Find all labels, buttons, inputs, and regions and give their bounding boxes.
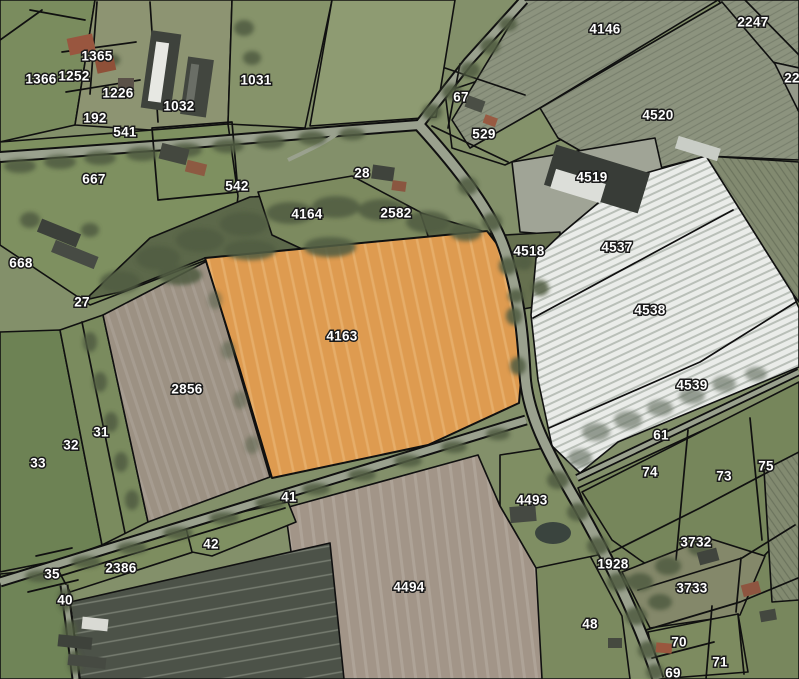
house <box>608 638 622 648</box>
parcel-label-1226: 1226 <box>102 86 133 101</box>
parcel-label-28: 28 <box>354 166 370 181</box>
parcel-label-529: 529 <box>472 127 495 142</box>
parcel-label-32: 32 <box>63 438 79 453</box>
parcel-label-42: 42 <box>203 537 219 552</box>
parcel-label-71: 71 <box>712 655 728 670</box>
parcel-label-35: 35 <box>44 567 60 582</box>
parcel-label-69: 69 <box>665 666 681 679</box>
parcel-label-70: 70 <box>671 635 687 650</box>
parcel-label-2582: 2582 <box>380 206 411 221</box>
parcel-label-667: 667 <box>82 172 105 187</box>
parcel-label-4518: 4518 <box>513 244 544 259</box>
parcel-label-1928: 1928 <box>597 557 628 572</box>
parcel-label-1365: 1365 <box>81 49 112 64</box>
parcel-label-41: 41 <box>281 490 297 505</box>
parcel-label-1031: 1031 <box>240 73 271 88</box>
parcel-label-4493: 4493 <box>516 493 547 508</box>
house <box>509 505 536 523</box>
parcel-label-668: 668 <box>9 256 33 271</box>
parcel-label-40: 40 <box>57 593 73 608</box>
parcel-label-4494: 4494 <box>393 580 424 595</box>
map-viewport[interactable]: 1365136612521226103210311925416676682754… <box>0 0 799 679</box>
parcel-label-75: 75 <box>758 459 774 474</box>
parcel-label-48: 48 <box>582 617 598 632</box>
parcel-label-31: 31 <box>93 425 109 440</box>
map-canvas[interactable]: 1365136612521226103210311925416676682754… <box>0 0 799 679</box>
parcel-label-3733: 3733 <box>676 581 707 596</box>
parcel-label-2386: 2386 <box>105 561 136 576</box>
parcel-label-73: 73 <box>716 469 732 484</box>
parcel-label-4163: 4163 <box>326 329 357 344</box>
parcel-label-67: 67 <box>453 90 469 105</box>
parcel-label-4520: 4520 <box>642 108 673 123</box>
parcel-label-4164: 4164 <box>291 207 322 222</box>
parcel-label-1366: 1366 <box>25 72 56 87</box>
parcel-label-4146: 4146 <box>589 22 620 37</box>
parcel-label-3732: 3732 <box>680 535 711 550</box>
parcel-label-74: 74 <box>642 465 658 480</box>
pond <box>535 522 571 544</box>
parcel-label-1032: 1032 <box>163 99 194 114</box>
parcel-label-541: 541 <box>113 125 137 140</box>
parcel-label-4537: 4537 <box>601 240 632 255</box>
parcel-label-27: 27 <box>74 295 90 310</box>
parcel-label-4538: 4538 <box>634 303 665 318</box>
parcel-label-542: 542 <box>225 179 248 194</box>
house-red-roof <box>656 642 673 653</box>
parcel-label-33: 33 <box>30 456 46 471</box>
parcel-label-61: 61 <box>653 428 669 443</box>
parcel-label-4519: 4519 <box>576 170 607 185</box>
parcel-label-4539: 4539 <box>676 378 707 393</box>
parcel-label-2247: 2247 <box>737 15 768 30</box>
parcel-label-2856: 2856 <box>171 382 202 397</box>
parcel-label-1252: 1252 <box>58 69 89 84</box>
parcel-label-22: 22 <box>784 71 799 86</box>
house-red-roof <box>391 180 406 192</box>
parcel-label-192: 192 <box>83 111 106 126</box>
